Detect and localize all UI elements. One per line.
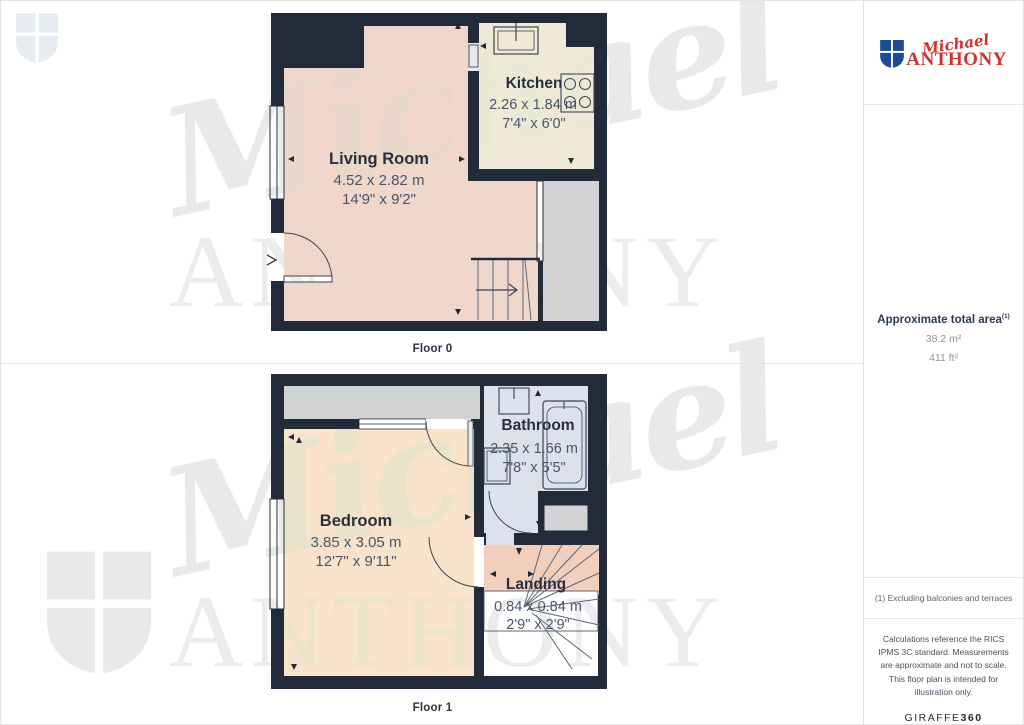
total-area-section: Approximate total area(1) 38.2 m² 411 ft… <box>864 105 1023 577</box>
floor0-panel: Living Room 4.52 x 2.82 m 14'9" x 9'2" K… <box>1 1 864 364</box>
floor0-label: Floor 0 <box>1 343 864 355</box>
bathroom: Bathroom 2.35 x 1.66 m 7'8" x 5'5" <box>490 417 578 476</box>
giraffe360-logo: GIRAFFE360 <box>877 712 1010 724</box>
bedroom: Bedroom 3.85 x 3.05 m 12'7" x 9'11" <box>311 512 402 570</box>
floorplan-page: Michael ANTHONY Michael ANTHONY <box>0 0 1024 725</box>
total-area-m2: 38.2 m² <box>864 333 1023 345</box>
room-metric: 3.85 x 3.05 m <box>311 534 402 551</box>
floor0-structure <box>271 13 607 331</box>
disclaimer-section: Calculations reference the RICS IPMS 3C … <box>864 619 1023 724</box>
room-metric: 2.35 x 1.66 m <box>490 441 578 457</box>
bedroom-top-wall-window-icon <box>284 419 426 429</box>
room-imperial: 2'9" x 2'9" <box>506 617 569 633</box>
room-name: Bathroom <box>501 417 574 434</box>
room-metric: 2.26 x 1.84 m <box>489 97 577 113</box>
floor0-plan: Living Room 4.52 x 2.82 m 14'9" x 9'2" K… <box>266 9 611 339</box>
total-area-label: Approximate total area(1) <box>864 313 1023 326</box>
room-name: Kitchen <box>506 75 563 92</box>
total-area-ft2: 411 ft² <box>864 352 1023 364</box>
room-imperial: 12'7" x 9'11" <box>315 553 396 570</box>
floor1-label: Floor 1 <box>1 702 864 714</box>
total-area-footnote-marker: (1) <box>1002 313 1010 320</box>
floor1-plan: Bedroom 3.85 x 3.05 m 12'7" x 9'11" Bath… <box>266 369 611 699</box>
room-metric: 4.52 x 2.82 m <box>334 172 425 189</box>
living-room-window-icon <box>270 106 284 199</box>
room-imperial: 7'4" x 6'0" <box>502 116 565 132</box>
plans-area: Michael ANTHONY Michael ANTHONY <box>1 1 864 724</box>
room-name: Bedroom <box>320 512 392 530</box>
bedroom-window-icon <box>270 499 284 609</box>
kitchen-door-icon <box>468 43 479 71</box>
agency-logo: Michael ANTHONY <box>864 1 1023 105</box>
agency-shield-icon <box>880 40 904 68</box>
disclaimer-text: Calculations reference the RICS IPMS 3C … <box>877 633 1010 699</box>
footnote-text: (1) Excluding balconies and terraces <box>864 577 1023 619</box>
room-name: Landing <box>506 576 566 593</box>
room-name: Living Room <box>329 150 429 168</box>
room-imperial: 14'9" x 9'2" <box>342 191 416 208</box>
info-sidebar: Michael ANTHONY Approximate total area(1… <box>864 1 1023 724</box>
room-imperial: 7'8" x 5'5" <box>502 460 565 476</box>
room-metric: 0.84 x 0.84 m <box>494 599 582 615</box>
living-room: Living Room 4.52 x 2.82 m 14'9" x 9'2" <box>329 150 429 208</box>
floor1-panel: Bedroom 3.85 x 3.05 m 12'7" x 9'11" Bath… <box>1 364 864 724</box>
